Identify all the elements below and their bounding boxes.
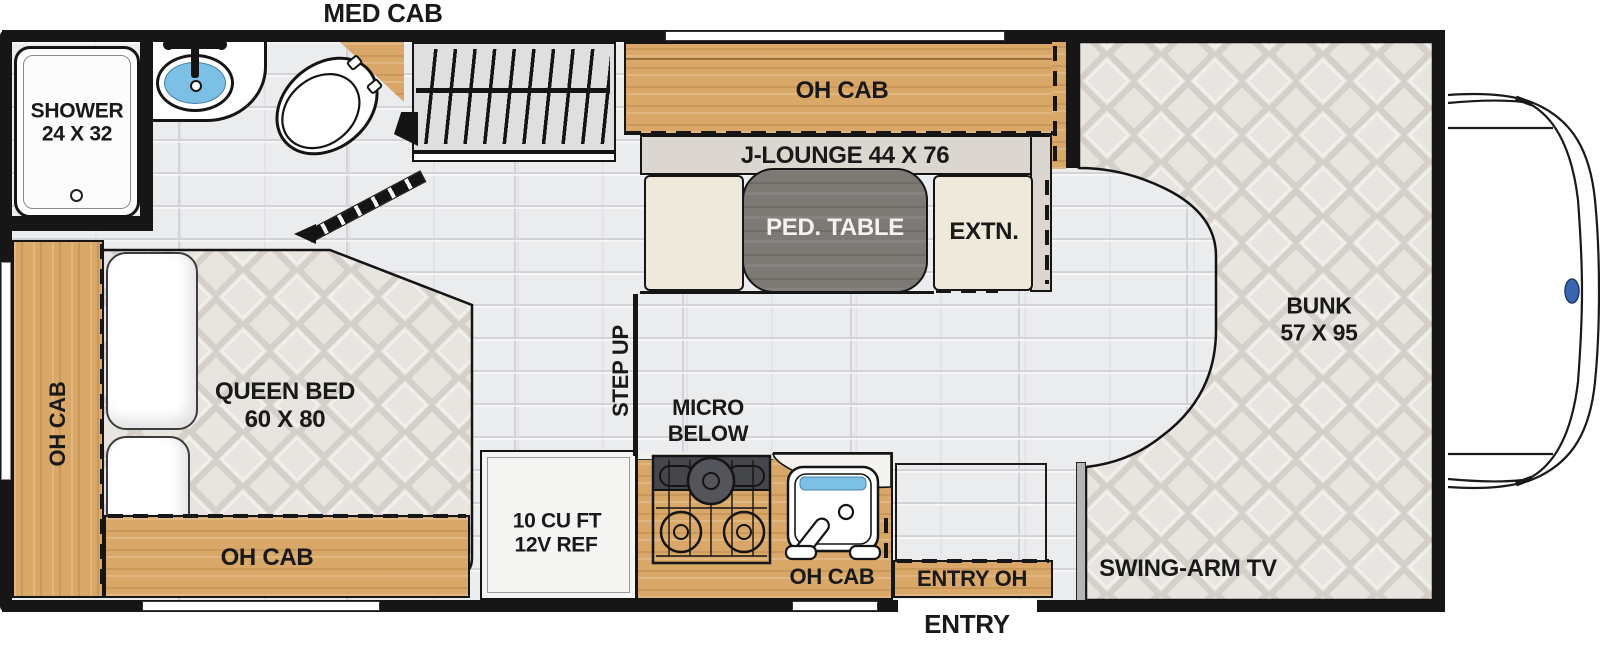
label-entry: ENTRY	[924, 611, 1010, 637]
label-micro-2: BELOW	[668, 423, 748, 445]
galley-cab-dash	[884, 518, 888, 564]
truck-cab-outline	[1448, 94, 1599, 488]
label-bunk-2: 57 X 95	[1280, 322, 1357, 345]
label-micro-1: MICRO	[672, 397, 744, 419]
galley-sink	[786, 467, 880, 559]
label-med-cab: MED CAB	[323, 0, 442, 26]
label-shower-1: SHOWER	[31, 101, 124, 122]
label-extn: EXTN.	[949, 220, 1018, 244]
label-ped-table: PED. TABLE	[766, 216, 904, 240]
bedroom-left-cab-dash	[100, 244, 104, 594]
bedroom-bottom-cab-dash	[108, 514, 466, 518]
label-dinette-oh-cab: OH CAB	[796, 79, 889, 103]
label-fridge-1: 10 CU FT	[513, 511, 602, 532]
label-entry-oh: ENTRY OH	[917, 568, 1027, 590]
label-oh-cab-left: OH CAB	[47, 382, 69, 467]
extn-dash-bottom	[936, 289, 998, 293]
label-queen-2: 60 X 80	[245, 408, 326, 432]
brand-emblem-icon	[1565, 279, 1579, 303]
label-shower-2: 24 X 32	[42, 124, 112, 145]
cooktop	[653, 456, 770, 563]
toilet	[258, 38, 396, 173]
entry-cab-dash	[897, 559, 1049, 563]
label-oh-cab-galley: OH CAB	[790, 566, 875, 588]
label-fridge-2: 12V REF	[514, 535, 597, 556]
label-queen-1: QUEEN BED	[215, 380, 355, 404]
cabinet-end-dash	[1053, 46, 1057, 164]
label-oh-cab-bed-bottom: OH CAB	[221, 546, 314, 570]
label-step-up: STEP UP	[610, 325, 632, 417]
label-swing-arm-tv: SWING-ARM TV	[1099, 557, 1277, 581]
dinette-cab-dash	[626, 131, 1054, 135]
rv-floorplan: MED CAB SHOWER 24 X 32 OH CAB J-LOUNGE 4…	[0, 0, 1600, 648]
label-j-lounge: J-LOUNGE 44 X 76	[741, 144, 950, 168]
extn-dash-right	[1045, 180, 1049, 284]
label-bunk-1: BUNK	[1286, 295, 1351, 318]
